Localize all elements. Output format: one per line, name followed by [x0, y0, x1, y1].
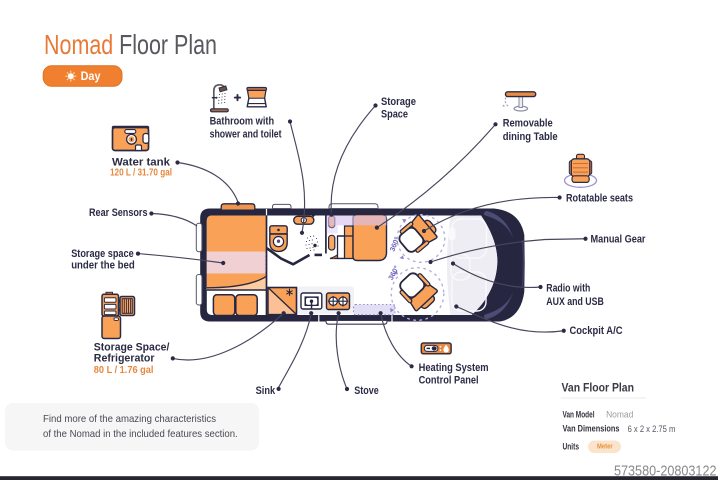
svg-text:Meter: Meter — [597, 443, 613, 450]
svg-text:Nomad: Nomad — [606, 410, 633, 420]
svg-text:Rear Sensors: Rear Sensors — [89, 207, 148, 219]
svg-text:360°: 360° — [386, 264, 401, 281]
svg-text:Units: Units — [563, 441, 580, 451]
svg-text:Manual Gear: Manual Gear — [591, 234, 647, 246]
svg-text:80 L / 1.76 gal: 80 L / 1.76 gal — [94, 365, 154, 376]
svg-text:Van Model: Van Model — [563, 410, 595, 420]
svg-text:Refrigerator: Refrigerator — [94, 353, 155, 365]
svg-text:Van Dimensions: Van Dimensions — [563, 424, 620, 434]
svg-text:shower and toilet: shower and toilet — [210, 129, 282, 141]
svg-text:Radio with: Radio with — [546, 282, 590, 294]
svg-text:AUX and USB: AUX and USB — [546, 296, 604, 308]
svg-text:Heating System: Heating System — [419, 362, 489, 374]
svg-text:Sink: Sink — [256, 385, 276, 397]
svg-text:Storage space: Storage space — [71, 248, 134, 260]
svg-text:Storage Space/: Storage Space/ — [94, 341, 170, 353]
svg-text:under the bed: under the bed — [71, 260, 135, 272]
svg-text:Space: Space — [381, 109, 408, 121]
svg-text:Control Panel: Control Panel — [419, 374, 479, 386]
svg-text:Find more of the amazing chara: Find more of the amazing characteristics — [43, 413, 216, 425]
svg-text:dining Table: dining Table — [503, 131, 558, 143]
svg-text:Day: Day — [81, 71, 101, 83]
svg-text:Stove: Stove — [354, 385, 379, 397]
svg-text:Storage: Storage — [381, 96, 416, 108]
svg-text:Bathroom with: Bathroom with — [210, 115, 275, 127]
svg-text:Van Floor Plan: Van Floor Plan — [562, 381, 635, 395]
svg-text:Rotatable seats: Rotatable seats — [566, 192, 633, 204]
svg-text:Nomad Floor Plan: Nomad Floor Plan — [44, 29, 217, 60]
svg-text:of the Nomad in the included f: of the Nomad in the included features se… — [43, 428, 238, 440]
svg-text:120 L / 31.70 gal: 120 L / 31.70 gal — [110, 168, 172, 179]
svg-text:Cockpit A/C: Cockpit A/C — [570, 325, 623, 337]
svg-text:Removable: Removable — [503, 118, 553, 130]
svg-text:6 x 2 x 2.75 m: 6 x 2 x 2.75 m — [628, 424, 676, 434]
